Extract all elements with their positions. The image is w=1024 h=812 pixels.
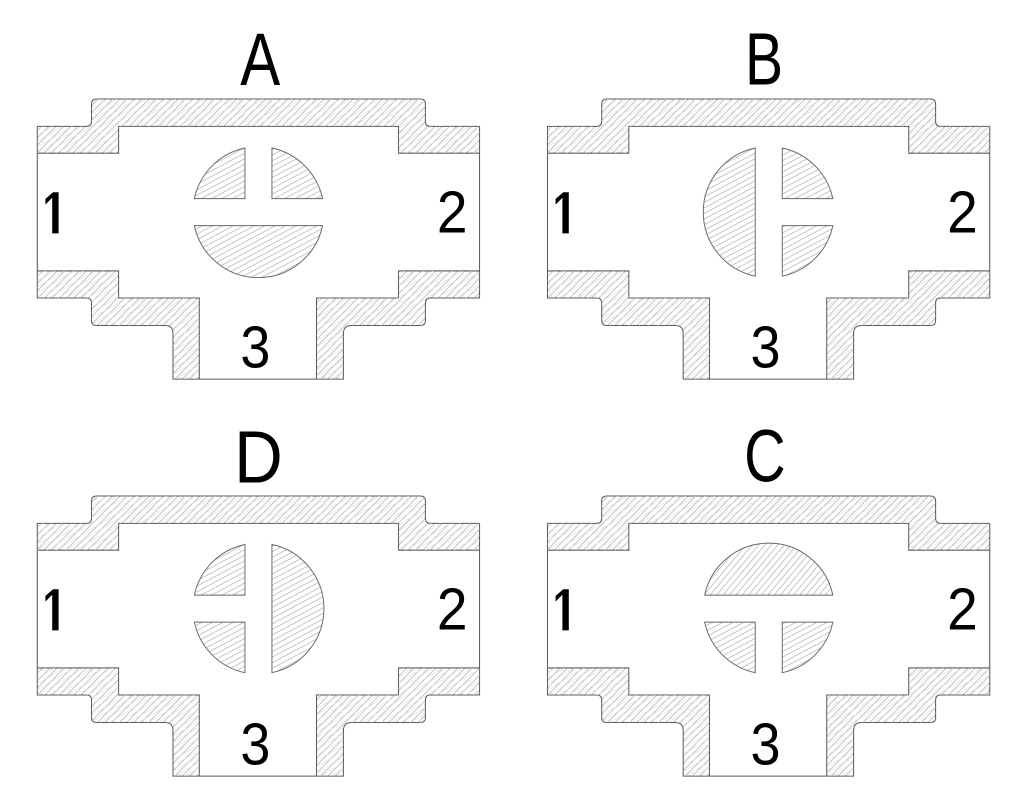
svg-text:3: 3 xyxy=(240,315,270,381)
svg-text:2: 2 xyxy=(947,577,978,643)
svg-text:3: 3 xyxy=(240,712,270,778)
svg-text:A: A xyxy=(240,19,280,101)
svg-text:D: D xyxy=(234,415,283,498)
svg-text:C: C xyxy=(744,416,786,499)
svg-text:3: 3 xyxy=(751,712,781,778)
svg-text:2: 2 xyxy=(437,180,468,246)
svg-text:2: 2 xyxy=(947,180,978,246)
svg-text:3: 3 xyxy=(751,315,781,381)
svg-text:2: 2 xyxy=(437,577,468,643)
svg-text:B: B xyxy=(745,19,783,102)
